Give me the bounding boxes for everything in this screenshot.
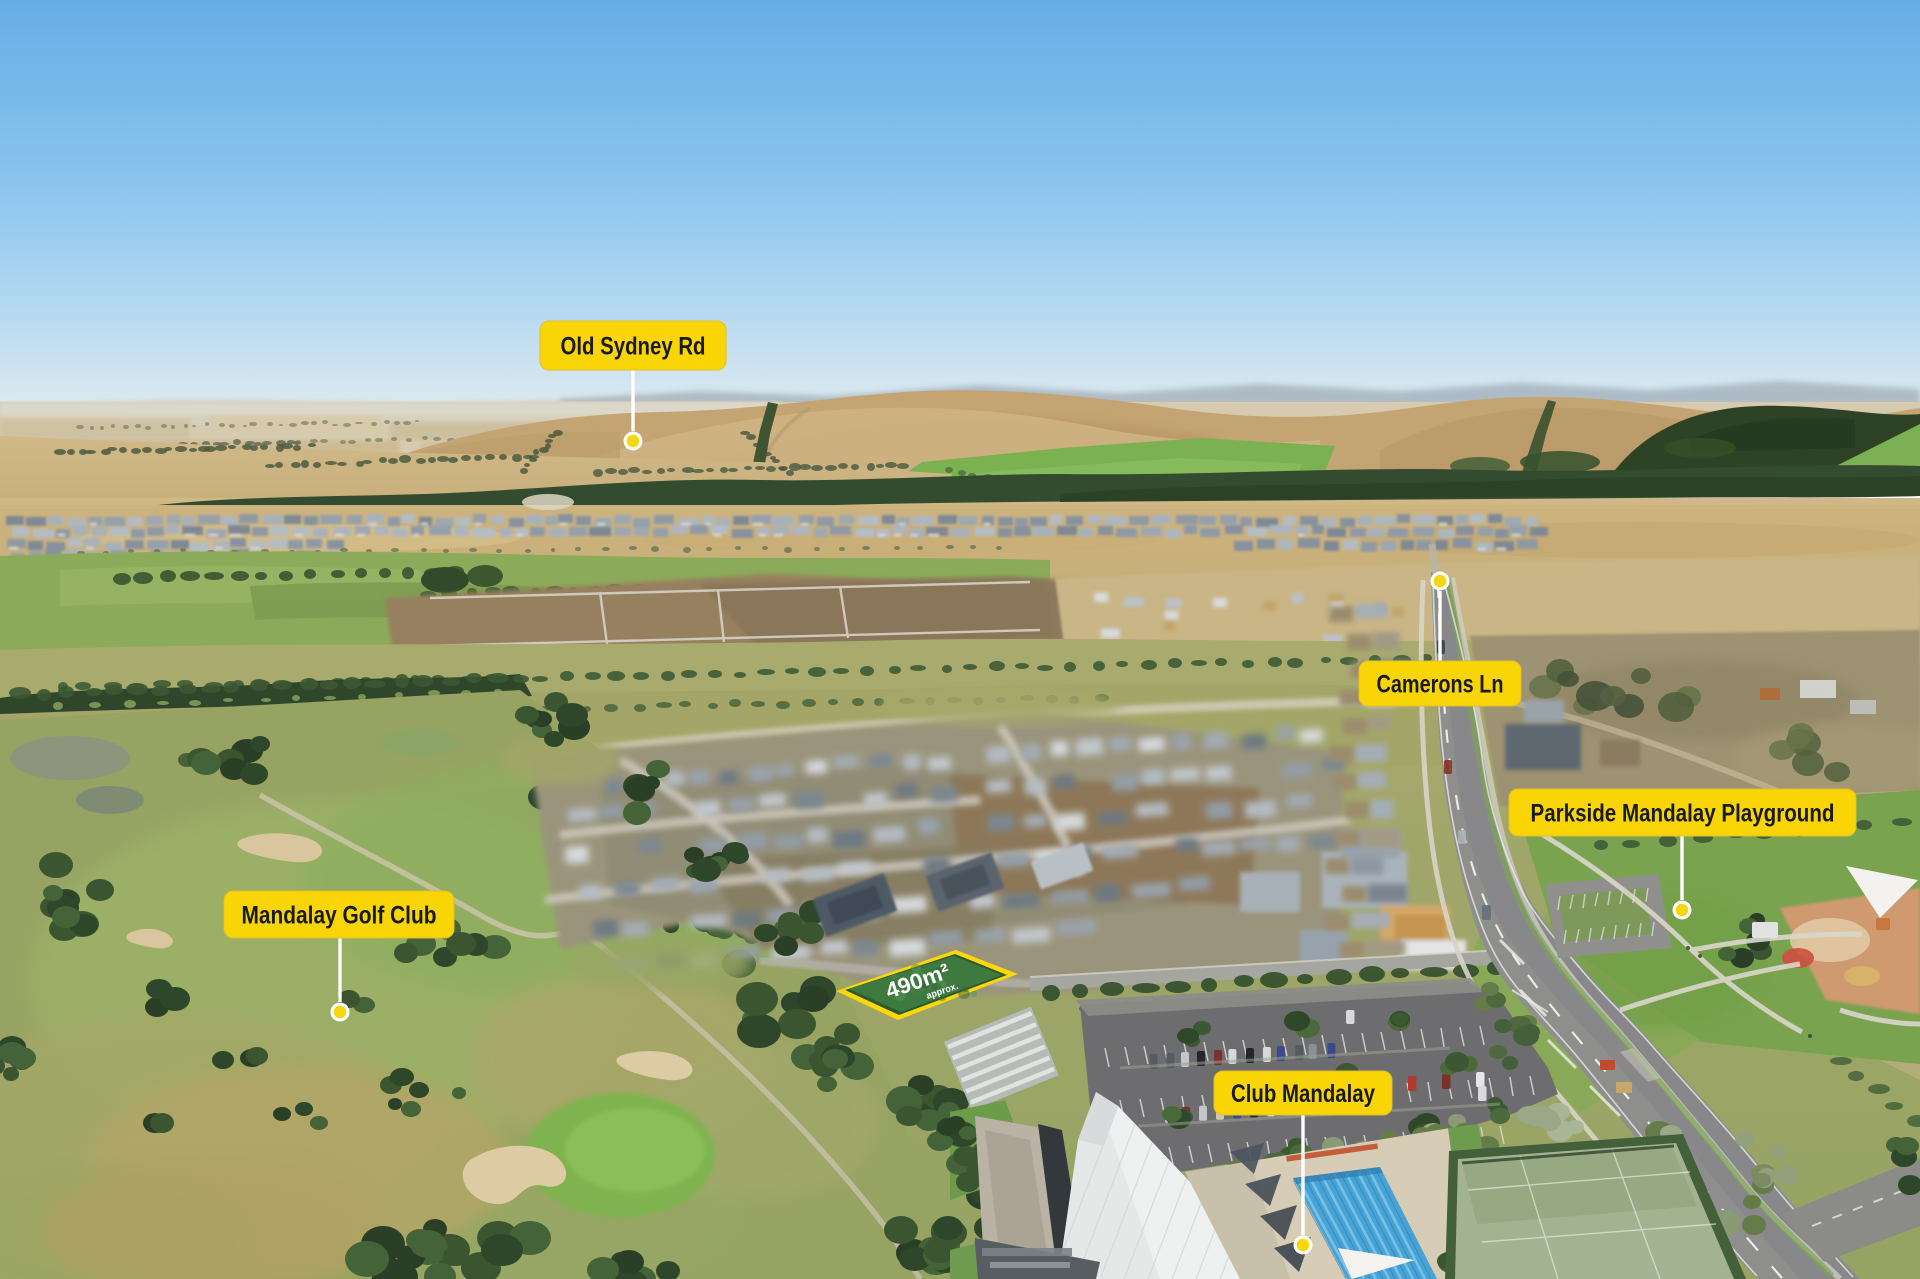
- svg-text:Mandalay Golf Club: Mandalay Golf Club: [242, 902, 437, 930]
- svg-text:Club Mandalay: Club Mandalay: [1231, 1080, 1375, 1108]
- svg-text:Camerons Ln: Camerons Ln: [1377, 671, 1504, 699]
- svg-text:Parkside Mandalay Playground: Parkside Mandalay Playground: [1531, 800, 1835, 828]
- svg-text:Old Sydney Rd: Old Sydney Rd: [561, 333, 706, 361]
